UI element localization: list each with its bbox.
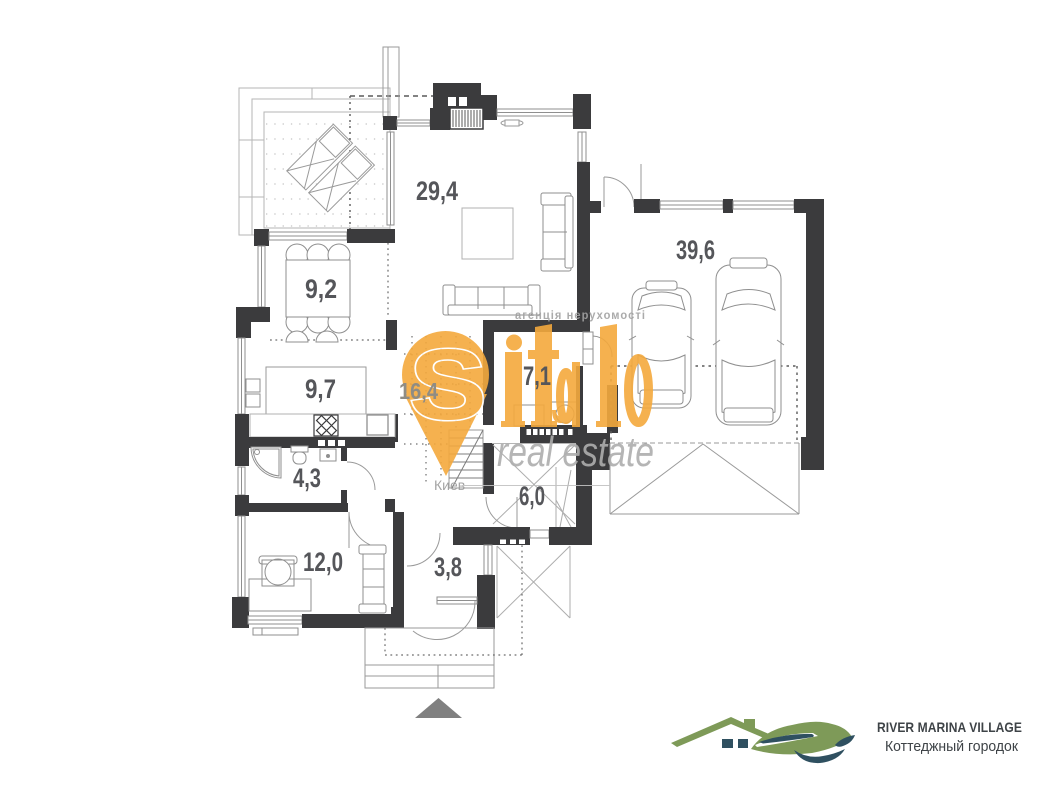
svg-text:29,4: 29,4	[416, 176, 458, 206]
svg-text:Киев: Киев	[434, 477, 465, 493]
svg-text:агенція нерухомості: агенція нерухомості	[515, 310, 646, 322]
svg-text:real estate: real estate	[497, 428, 654, 475]
svg-text:Коттеджный городок: Коттеджный городок	[885, 739, 1019, 755]
svg-text:4,3: 4,3	[293, 463, 321, 493]
svg-text:3,8: 3,8	[434, 552, 462, 582]
svg-text:9,2: 9,2	[305, 274, 337, 304]
svg-text:7,1: 7,1	[523, 361, 551, 391]
svg-text:16,4: 16,4	[399, 378, 438, 404]
svg-text:6,0: 6,0	[519, 481, 545, 511]
svg-text:39,6: 39,6	[676, 235, 715, 265]
svg-text:9,7: 9,7	[305, 374, 336, 404]
svg-text:12,0: 12,0	[303, 547, 343, 577]
svg-text:RIVER MARINA VILLAGE: RIVER MARINA VILLAGE	[877, 719, 1022, 735]
